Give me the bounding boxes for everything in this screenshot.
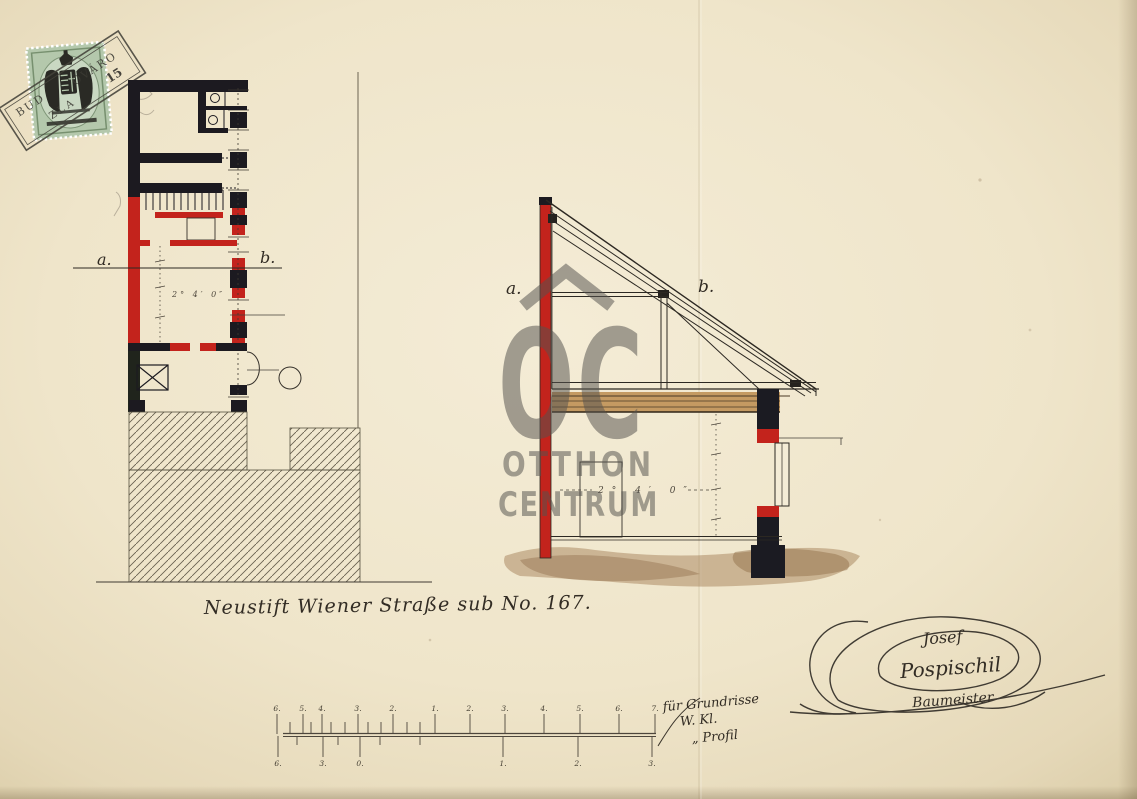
scale-top-label: 4. (539, 704, 547, 713)
scale-bottom-label: 0. (356, 759, 363, 768)
scale-top-label: 6. (615, 704, 622, 713)
scale-bottom-label: 1. (499, 759, 506, 768)
hatched-areas (129, 412, 360, 582)
section-label-b: b. (698, 277, 714, 297)
scale-top-label: 5. (299, 704, 306, 713)
stair-landing-wall (155, 212, 223, 218)
scale-top-label: 4. (317, 704, 325, 713)
scale-bottom-label: 3. (319, 759, 326, 768)
plan-label-b: b. (260, 248, 275, 267)
scanned-architectural-drawing: BUD ÓVÁRO ZLA 15 (0, 0, 1137, 799)
scale-bottom-label: 2. (573, 759, 581, 768)
scale-top-label: 2. (388, 704, 396, 713)
watermark: OC OTTHON CENTRUM (498, 271, 659, 525)
drawing-canvas: BUD ÓVÁRO ZLA 15 (0, 0, 1137, 799)
watermark-line1: OTTHON (502, 445, 654, 484)
scale-top-label: 3. (501, 704, 508, 713)
scale-bottom-label: 3. (648, 759, 655, 768)
section-label-a: a. (506, 279, 522, 299)
scale-top-label: 3. (354, 704, 361, 713)
scale-top-label: 7. (651, 704, 658, 713)
plan-label-a: a. (97, 250, 112, 269)
scale-top-label: 5. (576, 704, 583, 713)
scale-top-label: 6. (273, 704, 280, 713)
scale-bottom-label: 6. (274, 759, 281, 768)
signature-first-name: Josef (919, 626, 966, 648)
watermark-line2: CENTRUM (498, 485, 659, 525)
pillar-foundation (751, 545, 785, 578)
plan-dimension: 2° 4′ 0″ (171, 290, 225, 299)
scale-top-label: 1. (431, 704, 438, 713)
scale-top-label: 2. (465, 704, 473, 713)
